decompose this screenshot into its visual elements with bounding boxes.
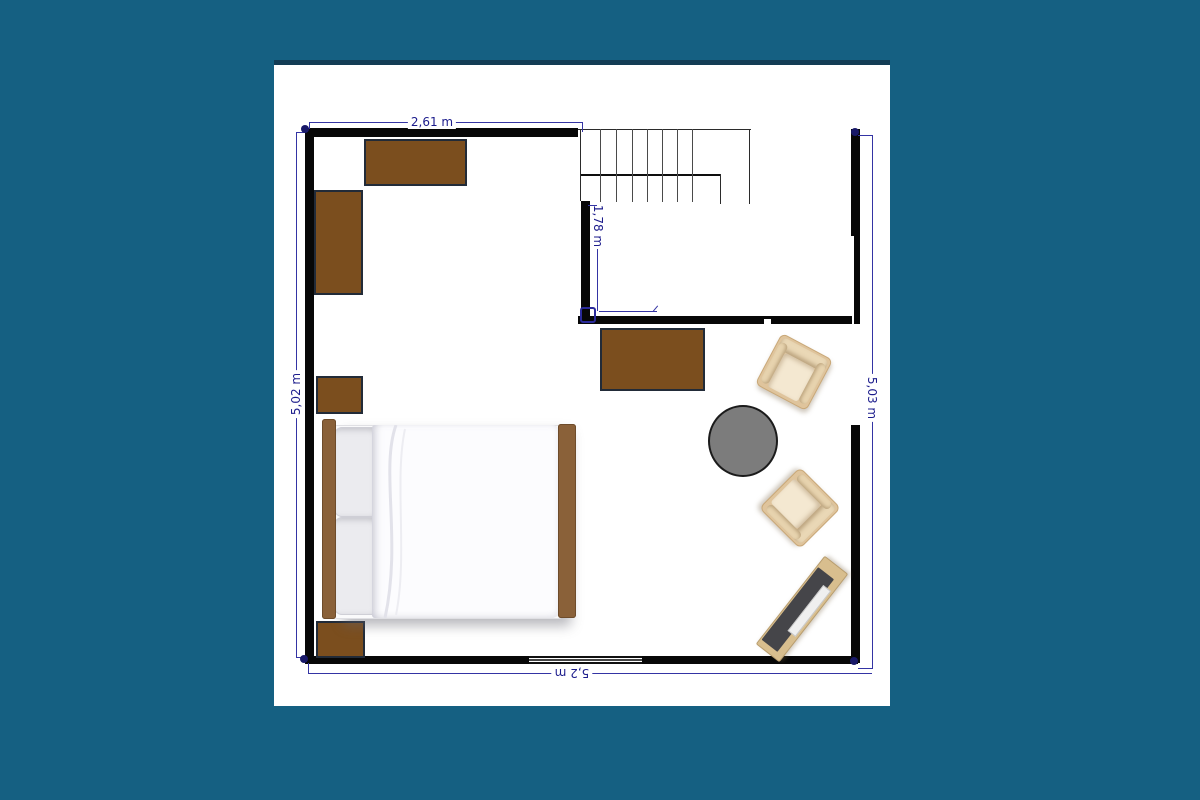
stair-riser bbox=[632, 129, 633, 202]
dim-tick bbox=[858, 668, 872, 669]
dim-line-interior bbox=[597, 249, 598, 311]
wall-right-upper bbox=[851, 129, 860, 236]
wall-joint-notch bbox=[764, 319, 771, 324]
window-glass-line bbox=[529, 660, 642, 661]
dim-label-top: 2,61 m bbox=[408, 115, 456, 129]
stair-riser bbox=[662, 129, 663, 202]
armchair-lower[interactable] bbox=[759, 467, 841, 549]
cabinet-bottom-left[interactable] bbox=[316, 621, 365, 658]
dresser-middle[interactable] bbox=[600, 328, 705, 391]
wall-top bbox=[305, 128, 578, 137]
stair-edge-left bbox=[580, 129, 581, 201]
dim-corner-dot bbox=[301, 125, 309, 133]
wardrobe-left[interactable] bbox=[314, 190, 363, 295]
stair-riser bbox=[647, 129, 648, 202]
tv-screen bbox=[762, 567, 834, 652]
window-glass-line bbox=[529, 659, 642, 660]
dim-tick bbox=[308, 663, 309, 673]
dim-corner-dot bbox=[300, 655, 308, 663]
dim-tick bbox=[309, 122, 310, 129]
bed-footboard bbox=[558, 424, 576, 618]
dim-corner-dot bbox=[851, 128, 859, 136]
bed-duvet bbox=[372, 425, 560, 618]
dresser-top[interactable] bbox=[364, 139, 467, 186]
cabinet-left-small[interactable] bbox=[316, 376, 363, 414]
floorplan-canvas[interactable]: 2,61 m 5,02 m 5,03 m 5,2 m 1,78 m bbox=[274, 60, 890, 706]
dim-corner-dot bbox=[850, 657, 858, 665]
armchair-upper[interactable] bbox=[755, 333, 833, 411]
stair-landing-line bbox=[581, 174, 721, 176]
bed-headboard bbox=[322, 419, 336, 619]
stair-riser bbox=[677, 129, 678, 202]
dim-label-right: 5,03 m bbox=[865, 374, 879, 422]
wall-left bbox=[305, 128, 314, 663]
stair-riser bbox=[692, 129, 693, 202]
dim-tick bbox=[582, 122, 583, 132]
dim-label-interior: 1,78 m bbox=[591, 202, 605, 250]
wall-stair-horizontal bbox=[578, 316, 852, 324]
round-side-table[interactable] bbox=[708, 405, 778, 477]
double-bed[interactable] bbox=[318, 415, 580, 625]
dim-corner-bracket bbox=[580, 307, 596, 323]
dim-tick bbox=[858, 135, 872, 136]
stair-riser bbox=[600, 129, 601, 202]
stair-edge-right bbox=[749, 129, 750, 204]
stair-riser bbox=[616, 129, 617, 202]
duvet-fold-lines bbox=[372, 425, 412, 618]
wall-right-mid bbox=[854, 236, 860, 324]
dim-label-left: 5,02 m bbox=[289, 370, 303, 418]
dim-line-interior-horizontal bbox=[599, 311, 657, 312]
stair-edge-top bbox=[578, 129, 751, 130]
dim-label-bottom: 5,2 m bbox=[552, 666, 593, 680]
stair-inner-edge bbox=[720, 174, 721, 204]
wall-right-lower bbox=[851, 425, 860, 663]
app-background: 2,61 m 5,02 m 5,03 m 5,2 m 1,78 m bbox=[0, 0, 1200, 800]
window-bottom[interactable] bbox=[529, 656, 642, 664]
tv-sideboard[interactable] bbox=[756, 556, 849, 663]
